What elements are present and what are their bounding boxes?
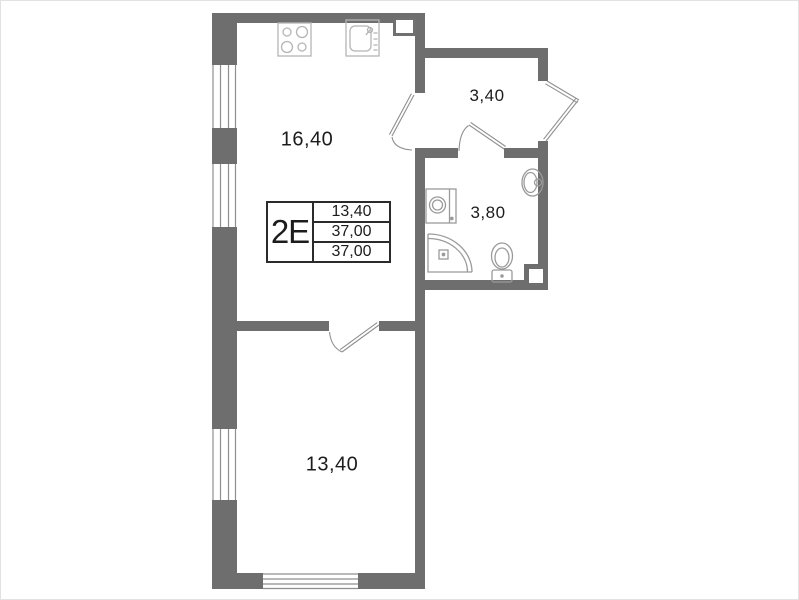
bathroom-area-label: 3,80 — [470, 203, 505, 223]
window-bedroom-left-icon — [213, 429, 236, 500]
unit-type-label: 2E — [268, 203, 314, 261]
unit-living-area: 13,40 — [314, 203, 389, 223]
hallway-area-label: 3,40 — [469, 86, 504, 106]
shower-icon — [428, 234, 472, 272]
stove-icon — [278, 23, 311, 56]
unit-total-area-2: 37,00 — [314, 243, 389, 261]
floor-plan: 16,40 3,40 3,80 13,40 2E 13,40 37,00 37,… — [0, 0, 799, 600]
unit-values: 13,40 37,00 37,00 — [314, 203, 389, 261]
kitchen-sink-icon — [346, 20, 379, 56]
window-bedroom-bottom-icon — [263, 574, 358, 589]
window-kitchen-upper-icon — [213, 65, 236, 128]
unit-label-box: 2E 13,40 37,00 37,00 — [266, 201, 391, 263]
entrance-door-icon — [544, 81, 579, 141]
bedroom-area-label: 13,40 — [306, 454, 359, 477]
plan-graphics — [1, 1, 799, 600]
kitchen-area-label: 16,40 — [281, 129, 334, 152]
washing-machine-icon — [426, 189, 456, 223]
window-kitchen-lower-icon — [213, 164, 236, 227]
bedroom-door-icon — [330, 323, 380, 352]
unit-total-area: 37,00 — [314, 223, 389, 243]
bathroom-door-icon — [459, 123, 506, 152]
bath-sink-icon — [522, 169, 543, 196]
toilet-icon — [492, 243, 513, 282]
kitchen-door-icon — [389, 94, 414, 150]
